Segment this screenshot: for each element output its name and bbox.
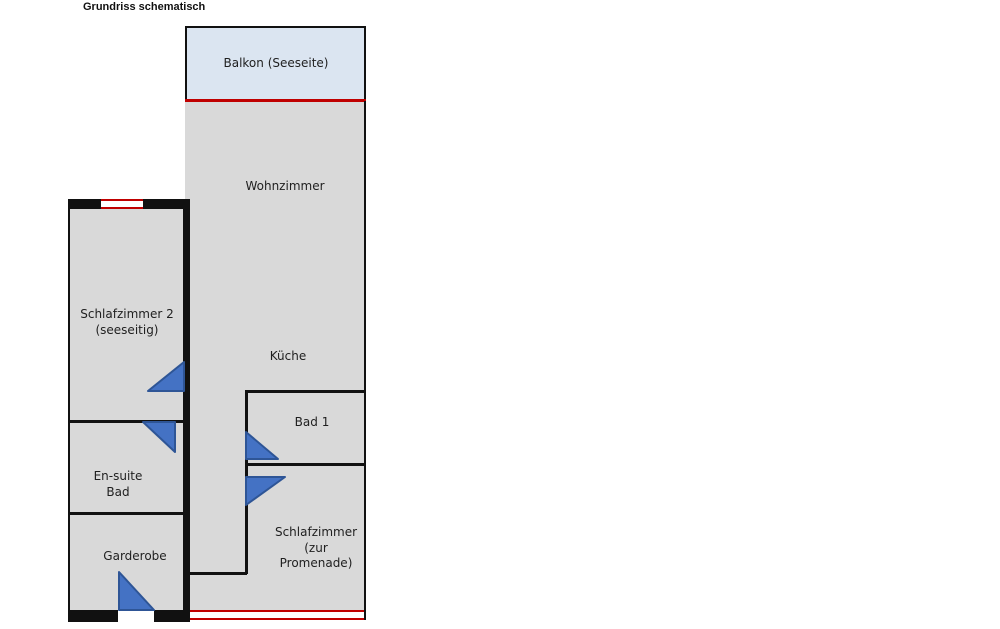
room-label-wohnzimmer: Wohnzimmer [215, 178, 355, 194]
wall-bad1-bottom [245, 463, 366, 466]
wall-bottom-left [68, 610, 118, 622]
room-label-garderobe: Garderobe [65, 548, 205, 564]
window-schlafzimmer2-icon [101, 199, 143, 209]
page-title: Grundriss schematisch [83, 1, 205, 13]
wall-ensuite-garderobe [68, 512, 186, 515]
wall-bad1-top [245, 390, 366, 393]
window-balkon-icon [185, 99, 366, 102]
room-corridor [190, 392, 247, 574]
room-label-bad1: Bad 1 [242, 414, 382, 430]
room-label-ensuite-bad: En-suite Bad [48, 468, 188, 500]
window-promenade-icon [190, 610, 364, 620]
wall-step [184, 572, 247, 575]
room-label-schlafzimmer2: Schlafzimmer 2 (seeseitig) [57, 306, 197, 338]
room-label-schlafzimmer-promenade: Schlafzimmer (zur Promenade) [246, 525, 386, 572]
wall-bottom-mid [154, 610, 190, 622]
floor-plan-page: Grundriss schematisch Balkon (Seeseite) … [0, 0, 1000, 629]
room-label-kueche: Küche [218, 348, 358, 364]
room-schlafzimmer-promenade-ext [190, 574, 247, 610]
room-label-balkon: Balkon (Seeseite) [206, 55, 346, 71]
wall-schlafzimmer2-ensuite [68, 420, 186, 423]
